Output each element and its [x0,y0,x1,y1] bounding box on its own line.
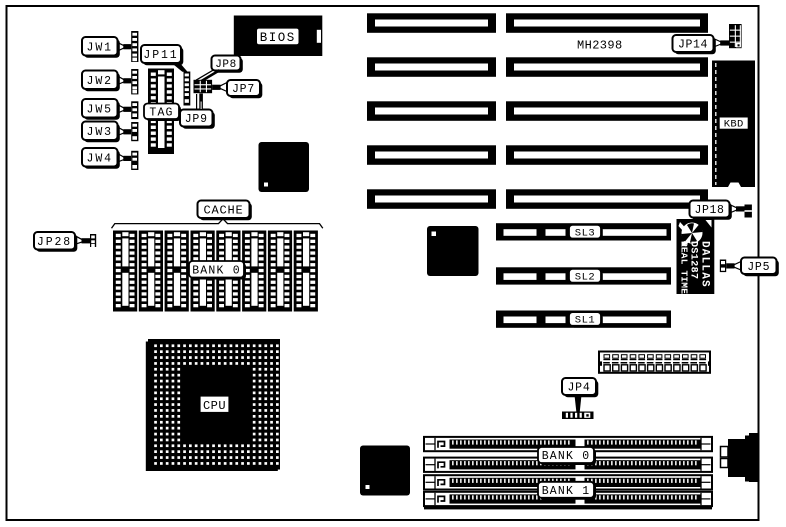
svg-text:SL3: SL3 [575,227,595,239]
svg-text:JP5: JP5 [747,261,770,274]
svg-text:SL2: SL2 [575,272,595,284]
svg-text:KBD: KBD [724,119,744,131]
svg-text:JP9: JP9 [185,113,208,126]
svg-text:JP8: JP8 [215,59,237,71]
svg-text:JP28: JP28 [37,236,72,249]
svg-text:JP4: JP4 [567,382,590,395]
svg-text:JW1: JW1 [87,41,113,54]
svg-text:BIOS: BIOS [260,31,296,45]
svg-text:SL1: SL1 [575,315,595,327]
svg-text:MH2398: MH2398 [577,39,623,53]
svg-text:BANK 0: BANK 0 [192,264,241,277]
svg-text:DALLAS: DALLAS [699,241,711,288]
svg-text:JW5: JW5 [87,103,113,116]
svg-text:TAG: TAG [149,106,173,119]
svg-text:JP7: JP7 [232,83,255,96]
svg-text:JP18: JP18 [694,204,724,217]
svg-text:JW2: JW2 [87,75,113,88]
svg-text:CACHE: CACHE [203,204,243,218]
svg-text:REAL TIME: REAL TIME [679,241,690,294]
svg-text:BANK 0: BANK 0 [542,450,591,463]
svg-text:CPU: CPU [203,399,226,413]
svg-text:JP11: JP11 [143,49,178,62]
svg-text:JW3: JW3 [87,126,113,139]
svg-text:JP14: JP14 [678,39,708,52]
svg-text:JW4: JW4 [87,152,113,165]
svg-text:BANK 1: BANK 1 [542,485,591,498]
